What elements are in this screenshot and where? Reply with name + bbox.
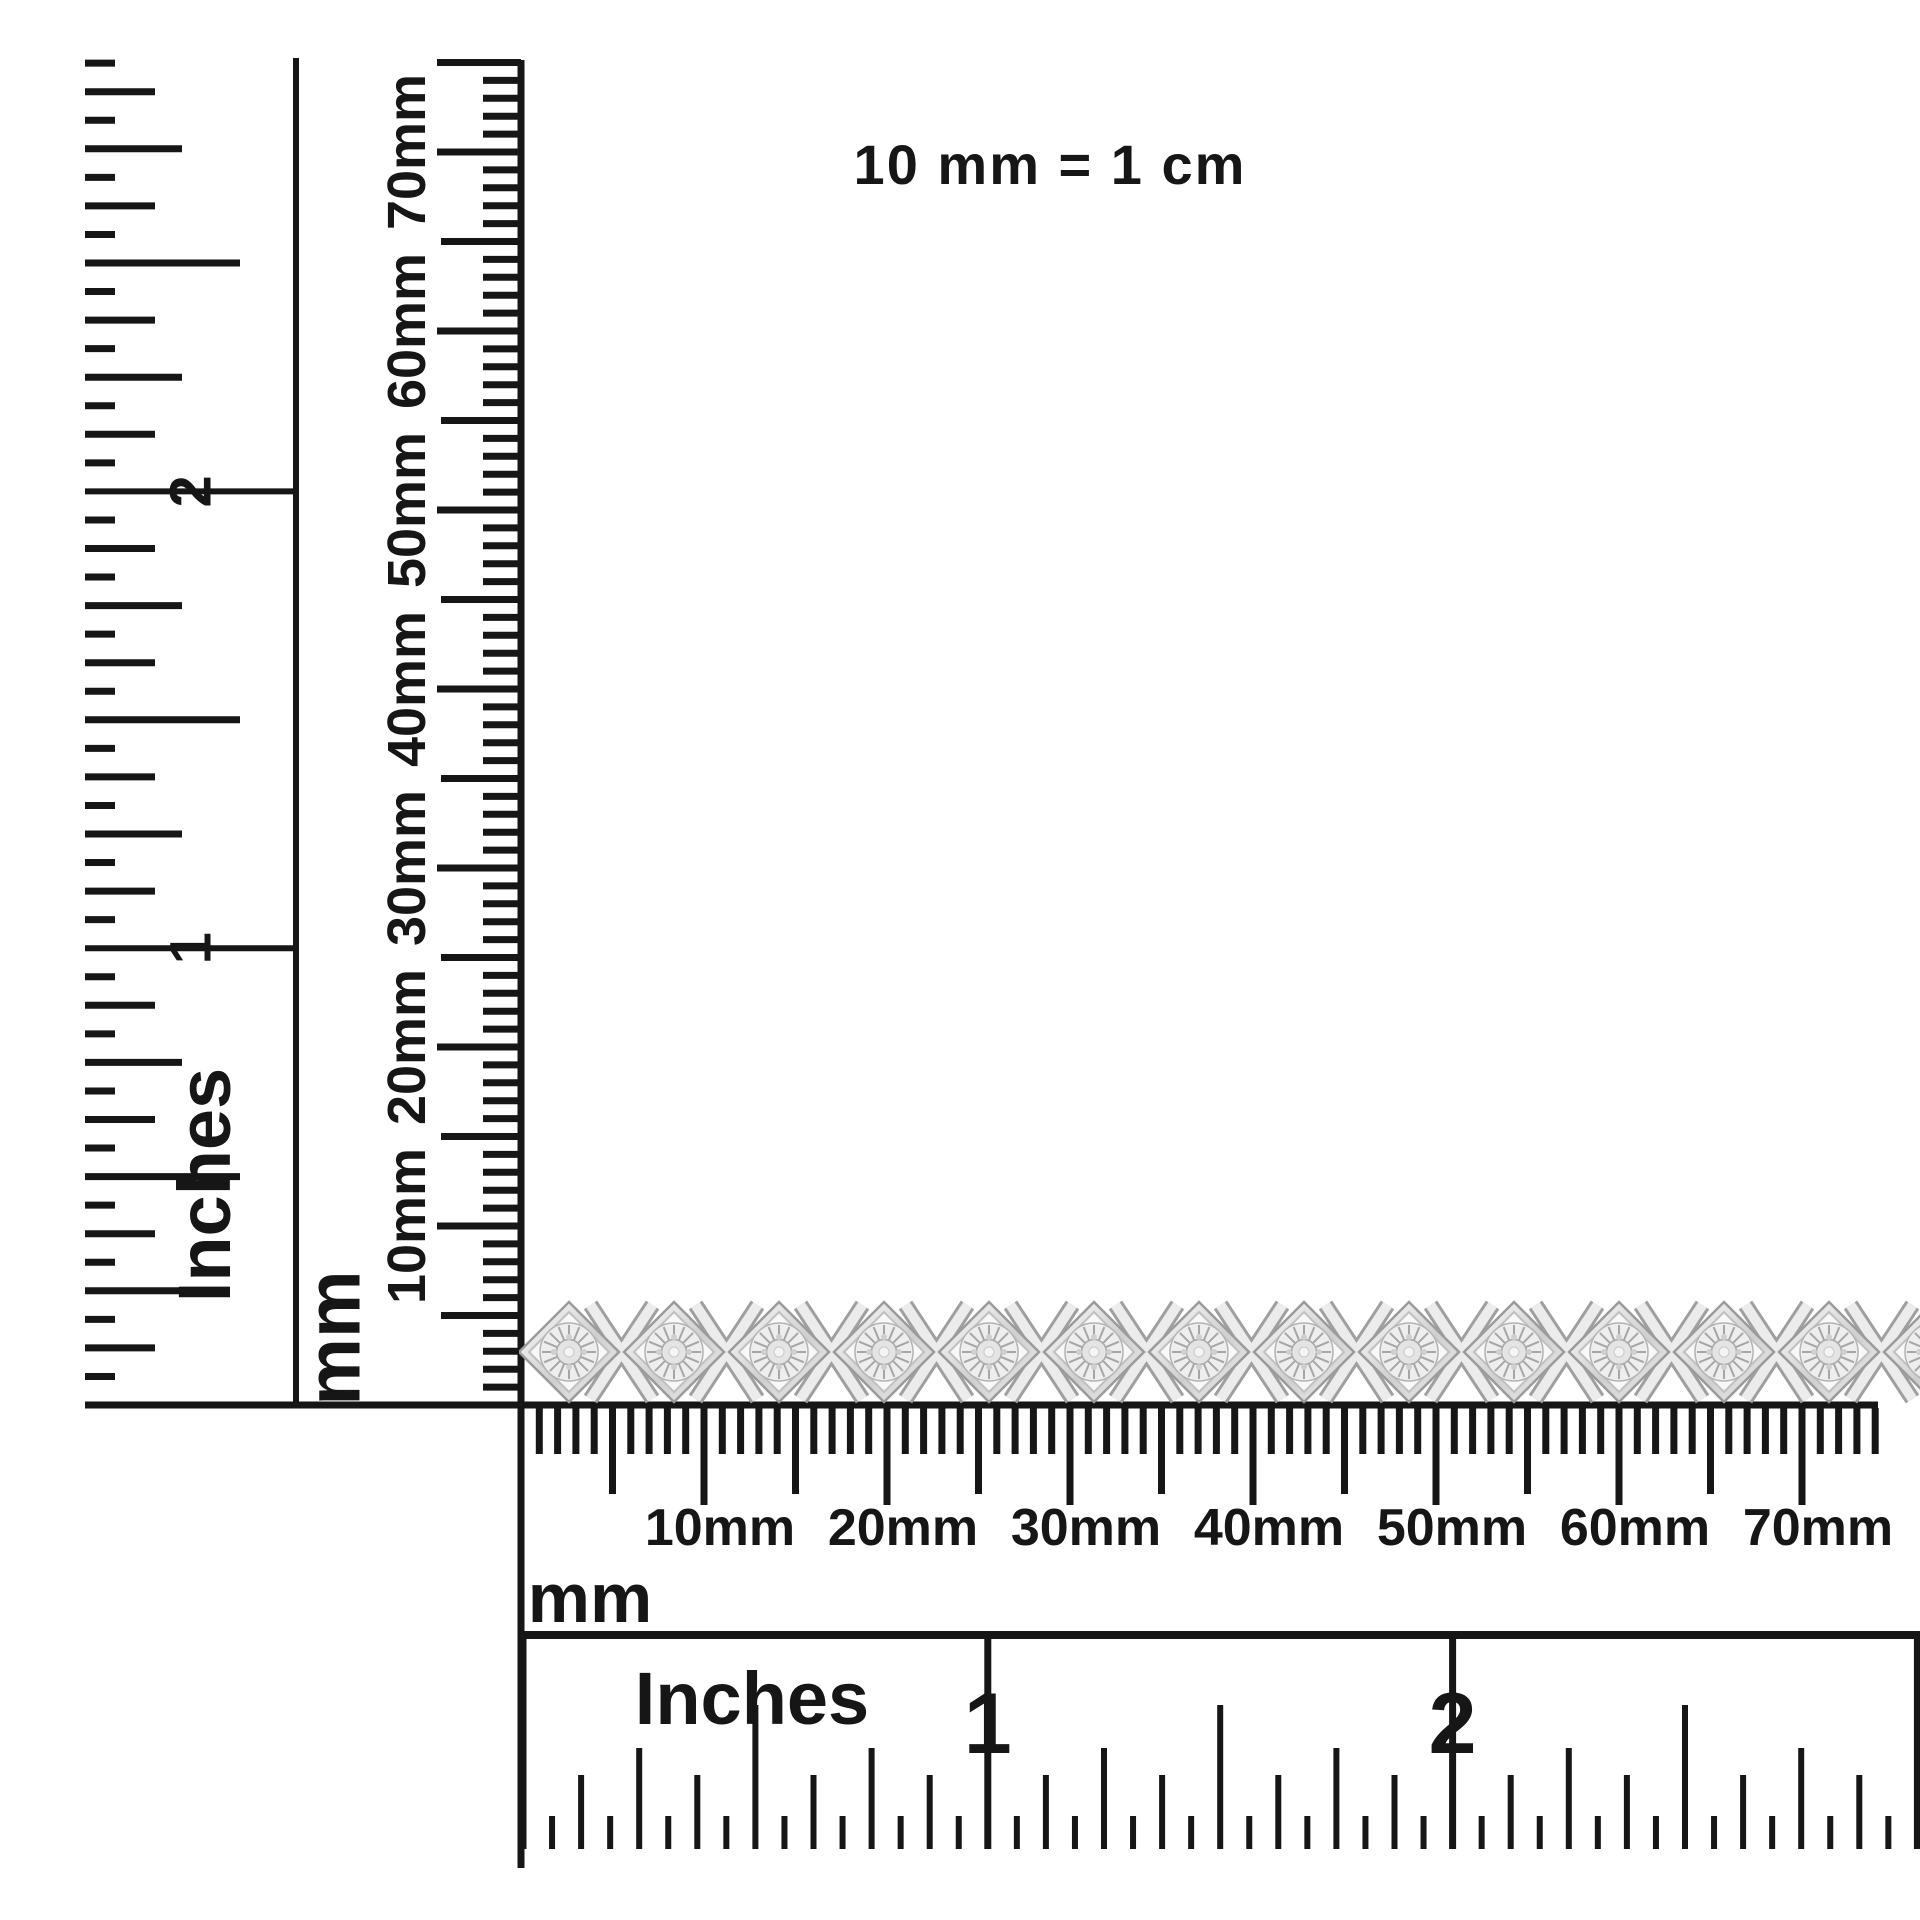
horizontal-inches-unit-label: Inches [635, 1657, 869, 1740]
mm-tick-label: 20mm [828, 1499, 978, 1557]
mm-tick-label: 40mm [1194, 1499, 1344, 1557]
prong [776, 1364, 782, 1370]
mm-tick-label: 50mm [377, 432, 437, 588]
prong [1316, 1349, 1322, 1355]
stone-table-highlight [1824, 1347, 1834, 1357]
prong [1091, 1334, 1097, 1340]
prong [1091, 1364, 1097, 1370]
size-guide-image: { "scale_note": { "text": "10 mm = 1 cm"… [0, 0, 1920, 1920]
prong [581, 1349, 587, 1355]
prong [671, 1364, 677, 1370]
stone-table-highlight [1614, 1347, 1624, 1357]
prong [671, 1334, 677, 1340]
horizontal-inch-ruler: 12Inches [520, 1635, 1920, 1849]
vertical-mm-ruler: 10mm20mm30mm40mm50mm60mm70mmmm [292, 60, 521, 1868]
mm-tick-label: 10mm [377, 1148, 437, 1304]
prong [1001, 1349, 1007, 1355]
prong [656, 1349, 662, 1355]
measurement-scene: 12Inches 10mm20mm30mm40mm50mm60mm70mmmm … [0, 0, 1920, 1920]
mm-tick-label: 40mm [377, 611, 437, 767]
inch-number: 2 [1429, 1676, 1477, 1772]
bracelet-photo [519, 1302, 1920, 1402]
prong [1811, 1349, 1817, 1355]
prong [1841, 1349, 1847, 1355]
prong [1526, 1349, 1532, 1355]
prong [1721, 1334, 1727, 1340]
prong [1826, 1334, 1832, 1340]
mm-tick-label: 70mm [1743, 1499, 1893, 1557]
stone-table-highlight [879, 1347, 889, 1357]
vertical-mm-unit-label: mm [292, 1270, 377, 1405]
stone-table-highlight [1194, 1347, 1204, 1357]
stone-table-highlight [1089, 1347, 1099, 1357]
prong [1406, 1364, 1412, 1370]
prong [896, 1349, 902, 1355]
prong [881, 1334, 887, 1340]
mm-tick-label: 60mm [1560, 1499, 1710, 1557]
mm-tick-label: 10mm [645, 1499, 795, 1557]
prong [776, 1334, 782, 1340]
prong [1076, 1349, 1082, 1355]
prong [1511, 1334, 1517, 1340]
mm-tick-label: 50mm [1377, 1499, 1527, 1557]
prong [1616, 1334, 1622, 1340]
prong [791, 1349, 797, 1355]
stone-table-highlight [1404, 1347, 1414, 1357]
prong [1286, 1349, 1292, 1355]
inch-number: 1 [158, 932, 223, 964]
prong [1706, 1349, 1712, 1355]
stone-table-highlight [669, 1347, 679, 1357]
prong [881, 1364, 887, 1370]
vertical-inch-ruler: 12Inches [85, 58, 296, 1405]
prong [1511, 1364, 1517, 1370]
prong [1421, 1349, 1427, 1355]
inch-number: 2 [158, 475, 223, 507]
prong [1736, 1349, 1742, 1355]
prong [1826, 1364, 1832, 1370]
stone-table-highlight [1299, 1347, 1309, 1357]
mm-tick-label: 60mm [377, 253, 437, 409]
prong [551, 1349, 557, 1355]
prong [866, 1349, 872, 1355]
vertical-inches-unit-label: Inches [163, 1068, 246, 1302]
prong [1106, 1349, 1112, 1355]
stone-table-highlight [1509, 1347, 1519, 1357]
mm-tick-label: 20mm [377, 969, 437, 1125]
prong [1196, 1364, 1202, 1370]
stone-table-highlight [564, 1347, 574, 1357]
prong [986, 1364, 992, 1370]
prong [1301, 1364, 1307, 1370]
prong [1601, 1349, 1607, 1355]
horizontal-mm-ruler: 10mm20mm30mm40mm50mm60mm70mmmm [85, 1405, 1893, 1637]
horizontal-mm-unit-label: mm [528, 1559, 652, 1637]
prong [1391, 1349, 1397, 1355]
prong [1496, 1349, 1502, 1355]
prong [1631, 1349, 1637, 1355]
prong [1721, 1364, 1727, 1370]
inch-number: 1 [964, 1676, 1012, 1772]
prong [686, 1349, 692, 1355]
prong [1406, 1334, 1412, 1340]
prong [566, 1364, 572, 1370]
prong [1616, 1364, 1622, 1370]
prong [1211, 1349, 1217, 1355]
mm-tick-label: 70mm [377, 74, 437, 230]
prong [971, 1349, 977, 1355]
prong [1301, 1334, 1307, 1340]
prong [986, 1334, 992, 1340]
stone-table-highlight [984, 1347, 994, 1357]
mm-tick-label: 30mm [377, 790, 437, 946]
prong [1196, 1334, 1202, 1340]
prong [1181, 1349, 1187, 1355]
prong [566, 1334, 572, 1340]
stone-table-highlight [774, 1347, 784, 1357]
stone-table-highlight [1719, 1347, 1729, 1357]
prong [761, 1349, 767, 1355]
mm-tick-label: 30mm [1011, 1499, 1161, 1557]
